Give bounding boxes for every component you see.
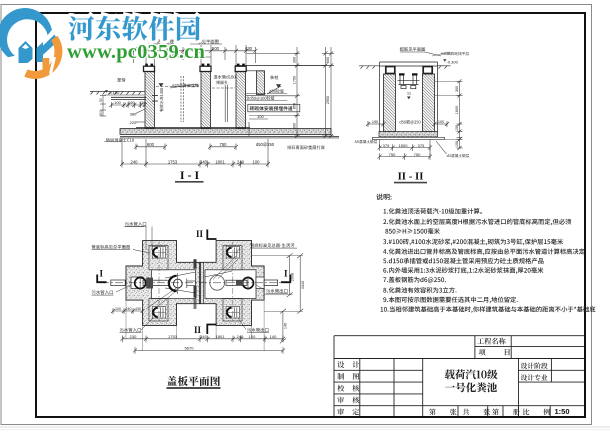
svg-text:II - II: II - II: [398, 171, 424, 183]
svg-text:1750: 1750: [293, 76, 297, 84]
svg-text:I: I: [284, 269, 288, 279]
svg-text:1500: 1500: [399, 143, 409, 148]
svg-text:2008: 2008: [291, 273, 295, 281]
svg-text:300: 300: [293, 123, 297, 129]
svg-text:140: 140: [284, 323, 288, 329]
svg-text:230: 230: [130, 334, 137, 339]
svg-text:I - I: I - I: [180, 168, 200, 182]
svg-text:375: 375: [383, 143, 390, 148]
svg-text:380: 380: [130, 112, 137, 117]
svg-text:430: 430: [245, 46, 253, 51]
svg-text:d50@250: d50@250: [256, 142, 275, 147]
svg-text:I: I: [100, 269, 104, 279]
svg-text:100: 100: [257, 114, 264, 119]
svg-text:11: 11: [407, 91, 412, 96]
svg-text:190: 190: [372, 120, 378, 124]
svg-text:375: 375: [418, 143, 425, 148]
svg-text:300: 300: [99, 110, 103, 116]
svg-text:1:50: 1:50: [555, 407, 570, 416]
svg-text:4340: 4340: [301, 281, 305, 289]
svg-text:240: 240: [126, 307, 132, 311]
svg-text:5670: 5670: [185, 346, 195, 351]
svg-text:-0.300: -0.300: [447, 60, 459, 65]
svg-text:240: 240: [237, 334, 244, 339]
svg-text:-0.100: -0.100: [108, 90, 120, 95]
svg-text:300: 300: [293, 57, 297, 63]
svg-text:240: 240: [131, 159, 139, 164]
svg-text:1801: 1801: [215, 159, 225, 164]
svg-text:1753: 1753: [168, 159, 178, 164]
svg-text:750: 750: [389, 152, 396, 157]
svg-text:240: 240: [200, 159, 208, 164]
svg-text:100: 100: [438, 120, 444, 124]
svg-text:750: 750: [414, 152, 421, 157]
svg-text:220: 220: [130, 120, 137, 125]
svg-text:1801: 1801: [216, 334, 226, 339]
svg-text:100: 100: [115, 307, 121, 311]
svg-text:300: 300: [455, 86, 459, 92]
svg-text:500: 500: [212, 46, 220, 51]
svg-text:600: 600: [147, 142, 155, 147]
svg-text:2950: 2950: [326, 96, 330, 104]
svg-text:850: 850: [293, 103, 297, 109]
svg-text:100: 100: [455, 141, 459, 147]
svg-text:750: 750: [220, 142, 228, 147]
svg-text:1600: 1600: [455, 106, 459, 114]
svg-text:240: 240: [200, 334, 207, 339]
svg-text:600: 600: [326, 57, 330, 63]
svg-text:II: II: [196, 229, 204, 239]
svg-text:1753: 1753: [168, 334, 178, 339]
svg-text:100: 100: [253, 159, 261, 164]
svg-text:140: 140: [270, 334, 277, 339]
svg-text:100: 100: [114, 100, 121, 105]
svg-text:100: 100: [249, 334, 256, 339]
svg-text:430: 430: [135, 307, 141, 311]
svg-text:50: 50: [99, 98, 103, 102]
svg-text:150: 150: [455, 125, 459, 131]
